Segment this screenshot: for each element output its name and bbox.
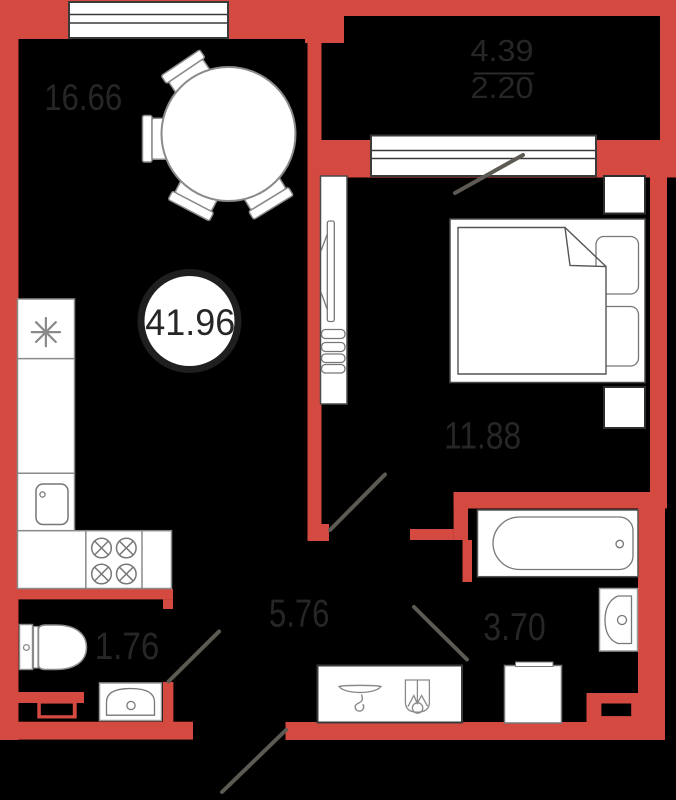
svg-text:16.66: 16.66 bbox=[44, 76, 122, 118]
svg-text:1.76: 1.76 bbox=[95, 626, 160, 668]
svg-text:41.96: 41.96 bbox=[145, 302, 235, 343]
svg-text:4.39: 4.39 bbox=[471, 33, 534, 68]
svg-text:2.20: 2.20 bbox=[471, 70, 534, 105]
svg-text:3.70: 3.70 bbox=[483, 606, 546, 649]
svg-text:5.76: 5.76 bbox=[269, 592, 330, 635]
svg-text:11.88: 11.88 bbox=[444, 416, 521, 458]
